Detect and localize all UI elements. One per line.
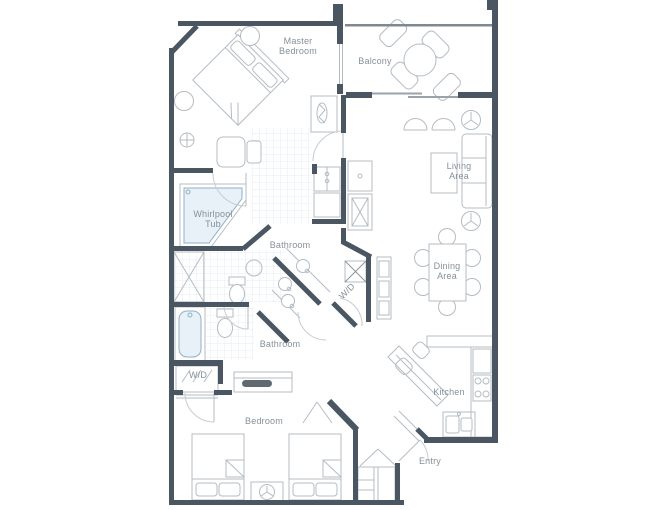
entry-closet bbox=[358, 449, 396, 503]
coffee-table bbox=[431, 153, 457, 193]
tv-cabinet bbox=[348, 194, 372, 230]
sofa bbox=[462, 134, 492, 208]
floor-lamp-icon bbox=[180, 133, 194, 147]
master-balcony-window bbox=[337, 26, 343, 94]
washer-dryer-center-unit bbox=[345, 261, 366, 282]
master-armchair bbox=[217, 137, 261, 167]
pantry-shelves bbox=[377, 257, 391, 319]
floor-plan-image: Master Bedroom Balcony Living Area Whirl… bbox=[0, 0, 672, 510]
kitchen-sink bbox=[443, 412, 475, 437]
living-barrel-chairs bbox=[404, 119, 455, 131]
stove-icon bbox=[473, 375, 491, 401]
guest-bed-1 bbox=[192, 434, 244, 500]
guest-bathtub bbox=[175, 307, 205, 361]
floor-plan-drawing bbox=[0, 0, 672, 510]
balcony-railing bbox=[345, 24, 492, 27]
master-dresser-lamp bbox=[311, 96, 337, 132]
hall-dresser bbox=[234, 372, 292, 392]
dining-table bbox=[429, 244, 466, 301]
master-toilet bbox=[229, 277, 245, 304]
sliding-glass-door bbox=[346, 92, 492, 98]
whirlpool-tub-fixture bbox=[180, 184, 246, 247]
guest-bed-2 bbox=[289, 434, 341, 500]
bedroom-nightstand-fan-icon bbox=[251, 482, 283, 502]
master-bed bbox=[191, 29, 289, 127]
